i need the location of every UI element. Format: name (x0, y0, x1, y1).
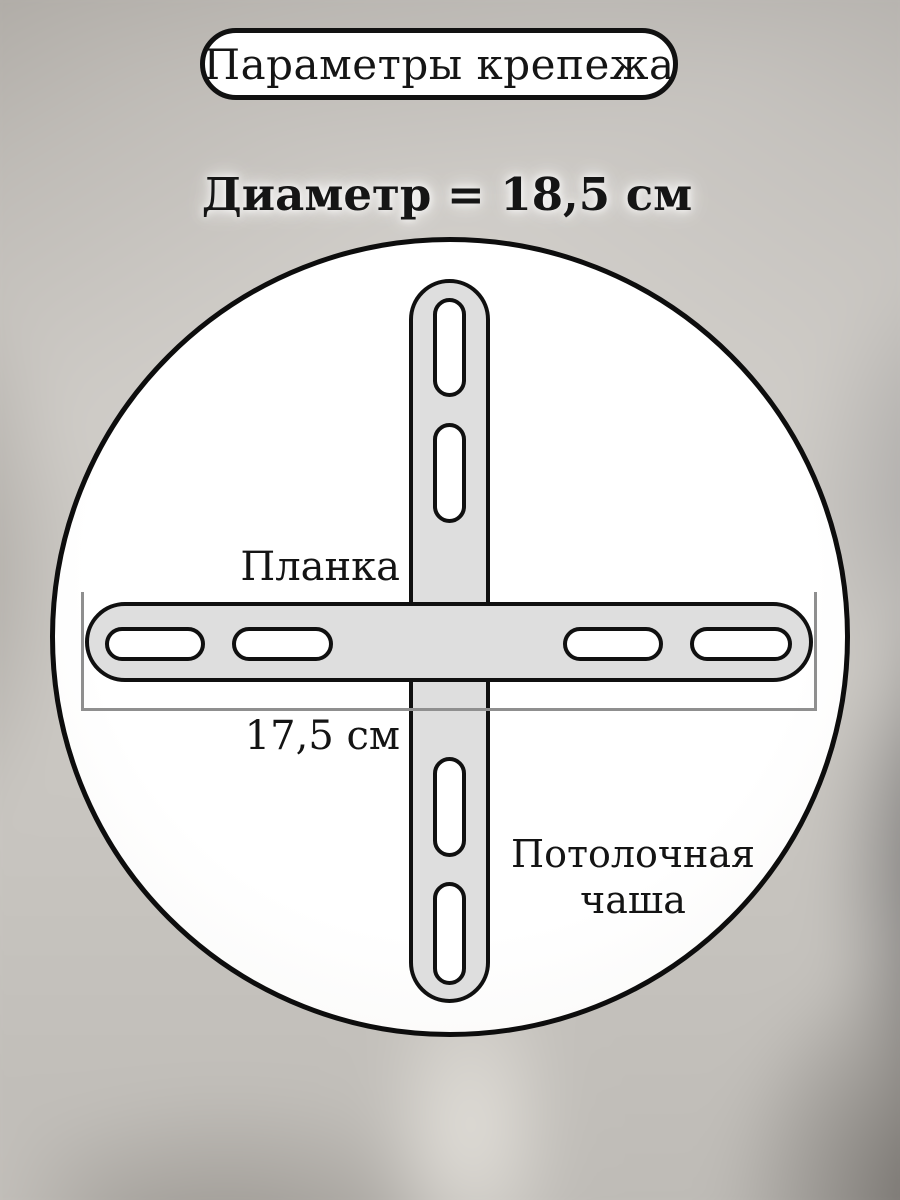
title-badge: Параметры крепежа (200, 28, 678, 100)
dimension-bracket (81, 592, 817, 711)
infographic-canvas: Параметры крепежа Диаметр = 18,5 см План… (0, 0, 900, 1200)
cup-label-line1: Потолочная (463, 831, 803, 877)
vertical-slot-3 (433, 757, 466, 857)
strip-label: Планка (100, 544, 400, 590)
page-title: Параметры крепежа (203, 40, 674, 89)
cup-label: Потолочная чаша (463, 831, 803, 923)
diameter-label: Диаметр = 18,5 см (0, 168, 894, 221)
cup-label-line2: чаша (463, 877, 803, 923)
vertical-slot-2 (433, 423, 466, 523)
strip-length-label: 17,5 см (100, 713, 400, 759)
vertical-slot-1 (433, 298, 466, 397)
vertical-slot-4 (433, 882, 466, 985)
